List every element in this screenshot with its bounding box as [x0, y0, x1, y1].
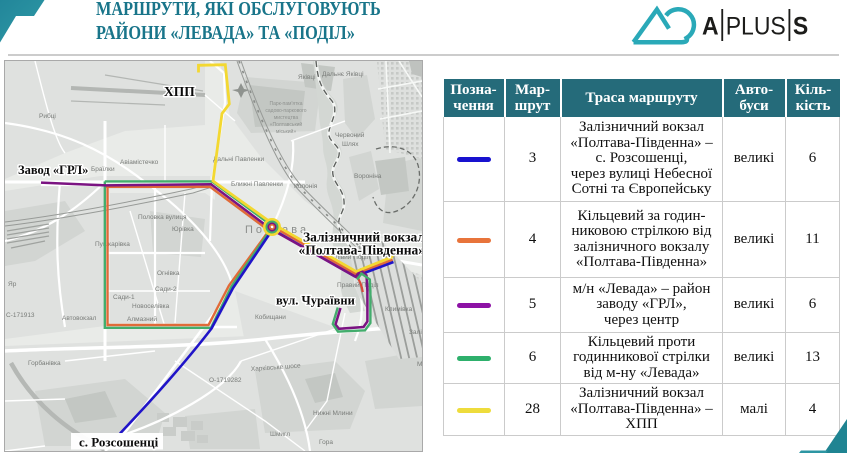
svg-text:Яківці: Яківці	[298, 73, 316, 81]
svg-text:с. Розсошенці: с. Розсошенці	[79, 435, 159, 450]
svg-text:Авіамістечко: Авіамістечко	[120, 158, 159, 166]
svg-text:Дальні Павленки: Дальні Павленки	[213, 155, 264, 163]
svg-text:«Полтавський: «Полтавський	[270, 121, 303, 128]
svg-text:Юрівка: Юрівка	[172, 225, 194, 233]
svg-text:Парк-пам'ятка: Парк-пам'ятка	[270, 101, 303, 107]
svg-text:міський»: міський»	[276, 128, 296, 135]
svg-text:Шлях: Шлях	[342, 141, 359, 148]
svg-text:Огнівка: Огнівка	[157, 269, 180, 277]
svg-text:«Полтава-Південна»: «Полтава-Південна»	[298, 243, 423, 258]
svg-text:Правий Поділ: Правий Поділ	[337, 281, 379, 289]
svg-text:Нижні Млини: Нижні Млини	[313, 409, 353, 417]
svg-text:Завод «ГРЛ»: Завод «ГРЛ»	[18, 163, 88, 177]
svg-text:О-1719282: О-1719282	[209, 377, 242, 384]
svg-text:вул. Чураївни: вул. Чураївни	[276, 294, 355, 308]
svg-text:С-171913: С-171913	[6, 312, 35, 319]
svg-text:Новоселівка: Новоселівка	[132, 302, 170, 310]
svg-text:Червоний: Червоний	[335, 131, 365, 139]
svg-text:Кобищани: Кобищани	[255, 313, 286, 321]
svg-text:Дальнє Яківці: Дальнє Яківці	[322, 70, 364, 78]
svg-text:Горбанівка: Горбанівка	[28, 359, 61, 367]
svg-text:Сади-2: Сади-2	[155, 286, 177, 293]
svg-text:Алмазний: Алмазний	[127, 315, 157, 323]
svg-text:Ближні Павленки: Ближні Павленки	[231, 180, 283, 188]
svg-text:Автовокзал: Автовокзал	[62, 315, 97, 322]
svg-text:Залізничн: Залізничн	[409, 328, 423, 336]
svg-text:Шмигл: Шмигл	[270, 431, 290, 438]
svg-text:Пушкарівка: Пушкарівка	[95, 240, 130, 248]
svg-text:Яр: Яр	[8, 281, 17, 288]
svg-text:мистецтва: мистецтва	[274, 115, 298, 121]
svg-text:Гора: Гора	[319, 439, 333, 446]
svg-text:Рибці: Рибці	[39, 112, 56, 120]
svg-text:Колонія: Колонія	[294, 182, 318, 190]
svg-text:М-03: М-03	[417, 361, 423, 368]
svg-text:Климівка: Климівка	[385, 305, 413, 313]
svg-text:Половка вулиця: Половка вулиця	[138, 214, 187, 221]
svg-text:Браїлки: Браїлки	[91, 166, 115, 173]
svg-text:Сади-1: Сади-1	[113, 294, 135, 301]
svg-text:ХПП: ХПП	[164, 84, 195, 99]
svg-text:Вороніна: Вороніна	[354, 172, 382, 180]
svg-text:садово-паркового: садово-паркового	[265, 108, 306, 114]
